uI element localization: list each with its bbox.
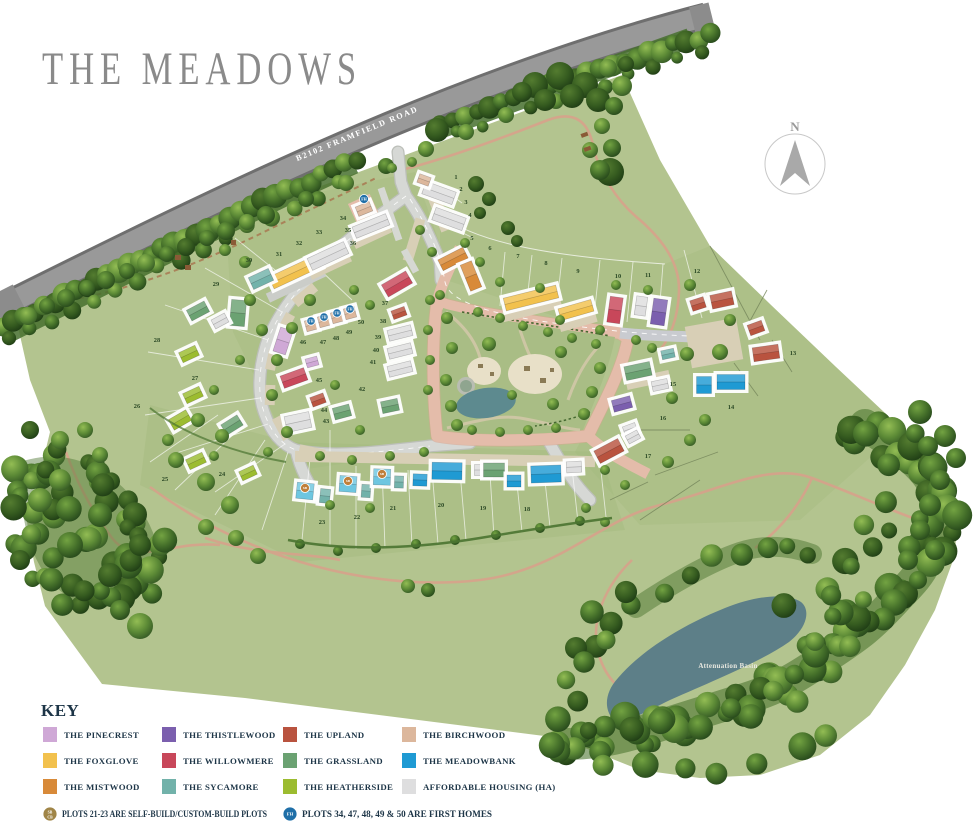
svg-text:22: 22 — [354, 514, 360, 521]
svg-text:THE WILLOWMERE: THE WILLOWMERE — [183, 756, 274, 766]
svg-text:19: 19 — [480, 505, 486, 512]
svg-text:28: 28 — [154, 337, 160, 344]
svg-text:25: 25 — [162, 476, 168, 483]
svg-text:THE MEADOWBANK: THE MEADOWBANK — [423, 756, 516, 766]
svg-text:23: 23 — [319, 519, 325, 526]
svg-text:THE SYCAMORE: THE SYCAMORE — [183, 782, 259, 792]
svg-text:FH: FH — [335, 311, 340, 315]
svg-text:10: 10 — [615, 273, 621, 280]
svg-text:2: 2 — [459, 186, 462, 193]
svg-text:FH: FH — [361, 196, 367, 201]
svg-text:38: 38 — [380, 318, 386, 325]
svg-text:SB: SB — [346, 479, 351, 483]
svg-text:FH: FH — [287, 812, 294, 817]
svg-text:3: 3 — [464, 199, 467, 206]
svg-text:THE UPLAND: THE UPLAND — [304, 730, 364, 740]
svg-text:5: 5 — [470, 235, 473, 242]
svg-text:48: 48 — [333, 335, 339, 342]
svg-text:27: 27 — [192, 375, 199, 382]
svg-text:31: 31 — [276, 251, 282, 258]
svg-text:THE HEATHERSIDE: THE HEATHERSIDE — [304, 782, 393, 792]
svg-text:THE PINECREST: THE PINECREST — [64, 730, 139, 740]
svg-text:16: 16 — [660, 415, 667, 422]
svg-text:FH: FH — [348, 307, 353, 311]
svg-text:CB: CB — [47, 815, 53, 819]
svg-text:13: 13 — [790, 350, 796, 357]
svg-text:17: 17 — [645, 453, 652, 460]
svg-text:9: 9 — [576, 268, 579, 275]
svg-text:SB: SB — [380, 472, 385, 476]
svg-text:21: 21 — [390, 505, 396, 512]
svg-text:THE BIRCHWOOD: THE BIRCHWOOD — [423, 730, 505, 740]
svg-text:N: N — [790, 119, 800, 134]
svg-text:THE MISTWOOD: THE MISTWOOD — [64, 782, 140, 792]
svg-text:37: 37 — [382, 300, 389, 307]
svg-text:41: 41 — [370, 359, 376, 366]
svg-text:AFFORDABLE HOUSING (HA): AFFORDABLE HOUSING (HA) — [423, 782, 556, 792]
svg-text:KEY: KEY — [41, 701, 79, 720]
svg-text:12: 12 — [694, 268, 700, 275]
svg-text:49: 49 — [346, 329, 352, 336]
svg-text:34: 34 — [340, 215, 347, 222]
svg-text:30: 30 — [246, 257, 252, 264]
svg-text:47: 47 — [320, 339, 327, 346]
svg-text:Attenuation Basin: Attenuation Basin — [698, 662, 757, 670]
svg-text:45: 45 — [316, 377, 322, 384]
svg-text:43: 43 — [323, 418, 329, 425]
svg-text:THE THISTLEWOOD: THE THISTLEWOOD — [183, 730, 276, 740]
svg-text:24: 24 — [219, 471, 226, 478]
svg-text:THE GRASSLAND: THE GRASSLAND — [304, 756, 383, 766]
svg-text:20: 20 — [438, 502, 444, 509]
svg-text:50: 50 — [358, 319, 364, 326]
svg-text:FH: FH — [309, 319, 314, 323]
svg-text:1: 1 — [454, 174, 457, 181]
svg-text:26: 26 — [134, 403, 141, 410]
svg-text:SB: SB — [303, 486, 308, 490]
svg-text:14: 14 — [728, 404, 735, 411]
svg-text:THE FOXGLOVE: THE FOXGLOVE — [64, 756, 139, 766]
svg-text:32: 32 — [296, 240, 302, 247]
svg-text:40: 40 — [373, 347, 379, 354]
svg-text:11: 11 — [645, 272, 651, 279]
svg-text:35: 35 — [345, 227, 351, 234]
svg-text:PLOTS 34, 47, 48, 49 & 50 ARE: PLOTS 34, 47, 48, 49 & 50 ARE FIRST HOME… — [302, 809, 492, 819]
svg-text:SB: SB — [48, 810, 53, 814]
svg-text:18: 18 — [524, 506, 530, 513]
svg-text:39: 39 — [375, 334, 381, 341]
svg-text:15: 15 — [670, 381, 676, 388]
svg-text:44: 44 — [321, 407, 328, 414]
svg-text:33: 33 — [316, 229, 322, 236]
svg-text:THE MEADOWS: THE MEADOWS — [42, 43, 362, 95]
svg-text:42: 42 — [359, 386, 365, 393]
svg-text:PLOTS 21-23 ARE SELF-BUILD/CUS: PLOTS 21-23 ARE SELF-BUILD/CUSTOM-BUILD … — [62, 809, 267, 819]
svg-text:29: 29 — [213, 281, 219, 288]
svg-text:36: 36 — [350, 240, 357, 247]
svg-text:46: 46 — [300, 339, 307, 346]
svg-text:FH: FH — [322, 315, 327, 319]
svg-text:8: 8 — [544, 260, 547, 267]
